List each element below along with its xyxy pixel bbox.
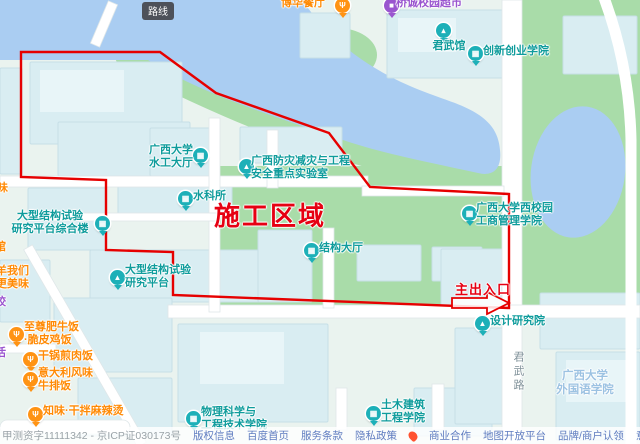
main-entrance-label: 主出入口 [455, 279, 511, 298]
restaurant-pin-icon[interactable]: Ψ [335, 0, 350, 13]
footer-links: 甲测资字11111342 - 京ICP证030173号版权信息百度首页服务条款隐… [2, 428, 640, 443]
poi-partial-shop1[interactable]: 饺 [0, 296, 6, 309]
school-cap-pin-icon[interactable]: ▴ [436, 23, 451, 38]
footer-link[interactable]: 地图开放平台 [483, 428, 546, 443]
pin-glyph: Ψ [27, 356, 33, 364]
poi-yanjiu-pingtai[interactable]: 大型结构试验 研究平台 [125, 264, 191, 290]
route-tooltip: 路线 [142, 2, 174, 20]
poi-bohua-canting[interactable]: 博华餐厅 [281, 0, 325, 10]
poi-junwuguan[interactable]: 君武馆 [425, 40, 473, 53]
footer-link[interactable]: 意见建议 [636, 428, 640, 443]
flame-icon [407, 429, 420, 442]
restaurant-pin-icon[interactable]: Ψ [23, 372, 38, 387]
poi-gongshang[interactable]: 广西大学西校园 工商管理学院 [476, 202, 553, 228]
footer-bar: 甲测资字11111342 - 京ICP证030173号版权信息百度首页服务条款隐… [0, 427, 640, 444]
poi-sheji-yuan[interactable]: 设计研究院 [490, 315, 545, 328]
pin-glyph: Ψ [13, 331, 19, 339]
poi-jiegou-dating[interactable]: 结构大厅 [319, 242, 363, 255]
poi-tumu-xueyuan[interactable]: 土木建筑 工程学院 [381, 399, 425, 425]
restaurant-pin-icon[interactable]: Ψ [23, 352, 38, 367]
building-pin-icon[interactable]: ▦ [95, 216, 110, 231]
footer-link[interactable]: 隐私政策 [355, 428, 397, 443]
footer-link[interactable]: 百度首页 [247, 428, 289, 443]
poi-shuigong-dating[interactable]: 广西大学 水工大厅 [144, 144, 198, 170]
lab-building-pin-icon[interactable]: ▲ [110, 270, 125, 285]
pin-glyph: ▦ [308, 247, 316, 255]
footer-link[interactable]: 版权信息 [193, 428, 235, 443]
poi-chuangxin-xueyuan[interactable]: 创新创业学院 [483, 45, 549, 58]
pin-glyph: ▦ [370, 410, 378, 418]
design-institute-pin-icon[interactable]: ▲ [475, 316, 490, 331]
poi-xiaoyuan-chaoshi[interactable]: 桥诚校园超市 [396, 0, 462, 10]
road-label-junwulu: 君武路 [511, 351, 524, 393]
poi-zonghelou[interactable]: 大型结构试验 研究平台综合楼 [4, 210, 96, 236]
pin-glyph: ▦ [190, 415, 198, 423]
building-pin-icon[interactable]: ▦ [366, 406, 381, 421]
icp-license-text: 甲测资字11111342 - 京ICP证030173号 [2, 428, 181, 443]
pin-glyph: ▦ [182, 195, 190, 203]
poi-yidali-niupaifan[interactable]: 意大利风味 牛排饭 [38, 367, 93, 393]
restaurant-pin-icon[interactable]: Ψ [9, 327, 24, 342]
pin-glyph: Ψ [32, 411, 38, 419]
poi-ganguo-jianroufan[interactable]: 干锅煎肉饭 [38, 350, 93, 363]
footer-link[interactable]: 品牌/商户认领 [558, 428, 624, 443]
poi-fangzai-lab[interactable]: 广西防灾减灾与工程 安全重点实验室 [251, 155, 350, 181]
pin-glyph: ▲ [114, 274, 122, 282]
building-pin-icon[interactable]: ▦ [178, 191, 193, 206]
pin-glyph: ▴ [441, 27, 445, 35]
poi-partial-shop2[interactable]: 活 [0, 347, 6, 360]
map-screenshot: ▦广西大学 水工大厅▲广西防灾减灾与工程 安全重点实验室▦水科所▦结构大厅▦大型… [0, 0, 640, 444]
construction-area-label: 施工区域 [214, 196, 326, 233]
pin-glyph: ▦ [466, 210, 474, 218]
pin-glyph: ▦ [99, 220, 107, 228]
pin-glyph: Ψ [339, 2, 345, 10]
pin-glyph: Ψ [27, 376, 33, 384]
poi-zhiwei-malatang[interactable]: 知味·干拌麻辣烫 [43, 405, 124, 418]
building-pin-icon[interactable]: ▦ [462, 206, 477, 221]
restaurant-pin-icon[interactable]: Ψ [28, 407, 43, 422]
poi-partial-guiwei[interactable]: 桂味 [0, 182, 8, 195]
footer-link[interactable]: 服务条款 [301, 428, 343, 443]
pin-glyph: ▲ [479, 320, 487, 328]
pin-glyph: ▲ [243, 163, 251, 171]
area-waiguoyu-xueyuan: 广西大学 外国语学院 [554, 370, 616, 397]
building-pin-icon[interactable]: ▦ [186, 411, 201, 426]
building-pin-icon[interactable]: ▦ [304, 243, 319, 258]
footer-link[interactable]: 商业合作 [429, 428, 471, 443]
poi-partial-yang[interactable]: 羊我们 更美味 [0, 265, 29, 291]
poi-partial-guan[interactable]: 馆 [0, 241, 6, 254]
pin-glyph: ■ [389, 2, 394, 10]
poi-zhizun-niufan[interactable]: 至尊肥牛饭 ·脆皮鸡饭 [24, 321, 79, 347]
